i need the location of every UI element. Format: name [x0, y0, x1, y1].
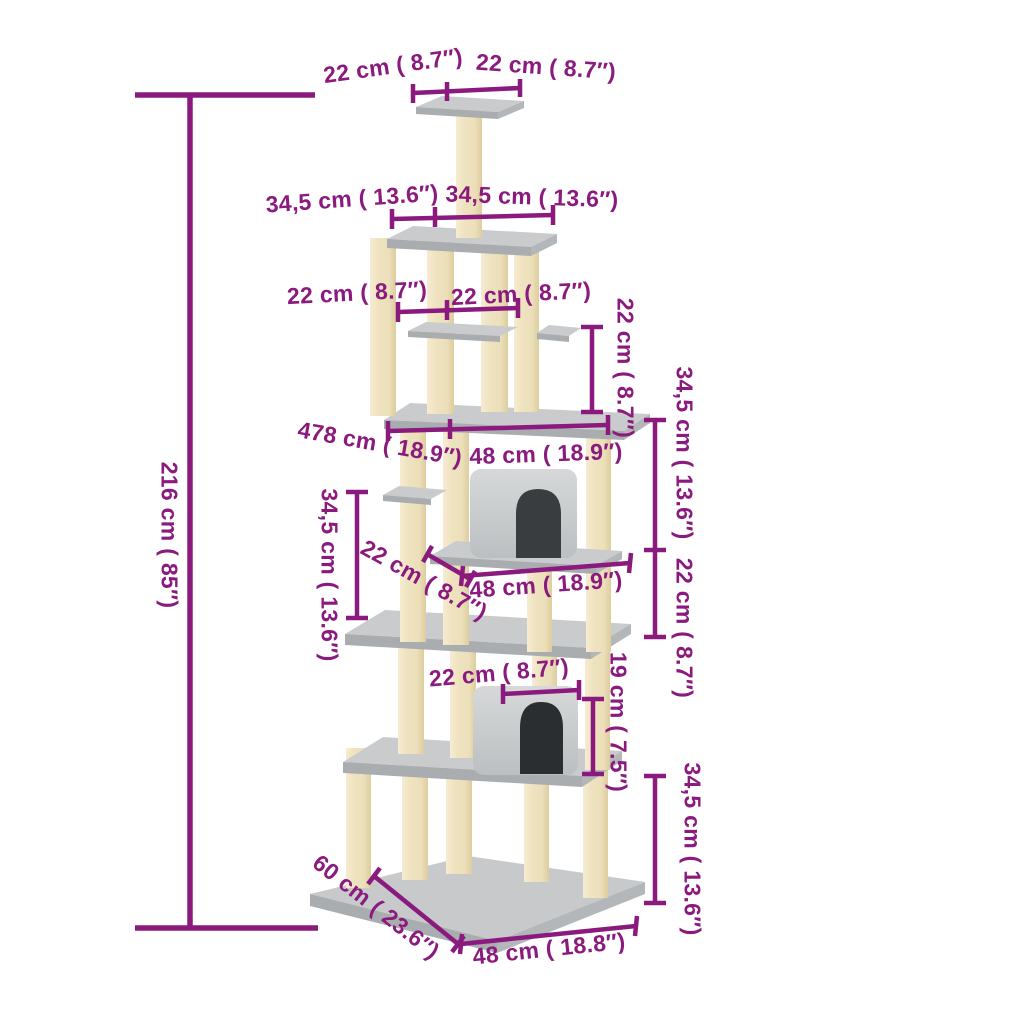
dim-label-shelf-drop-height: 22 cm ( 8.7″)	[612, 298, 639, 438]
cat-tree-illustration	[0, 0, 1024, 1024]
dim-base-gap	[644, 776, 666, 903]
dim-label-right-gap-lower-height: 22 cm ( 8.7″)	[671, 558, 698, 698]
dimension-diagram: 216 cm ( 85″) 22 cm ( 8.7″) 22 cm ( 8.7″…	[0, 0, 1024, 1024]
dim-label-right-gap-upper-height: 34,5 cm ( 13.6″)	[671, 366, 698, 539]
platform-top	[416, 96, 524, 119]
scratching-post	[481, 238, 508, 412]
dim-label-total-height: 216 cm ( 85″)	[156, 462, 183, 609]
dim-label-lower-house-height: 19 cm ( 7.5″)	[605, 652, 632, 792]
scratching-post	[514, 238, 539, 412]
dim-label-base-gap-height: 34,5 cm ( 13.6″)	[679, 762, 706, 935]
dim-shelf-drop	[581, 327, 603, 412]
house-opening-upper	[516, 489, 561, 558]
dim-label-main-platform-width: 48 cm ( 18.9″)	[469, 438, 623, 470]
house-opening-lower	[520, 702, 563, 774]
cat-house-lower	[473, 686, 578, 775]
shelf-upper-right	[537, 325, 581, 342]
scratching-post	[398, 636, 424, 754]
dim-right-gaps	[644, 420, 666, 637]
scratching-post	[370, 238, 396, 416]
scratching-post	[450, 640, 476, 758]
shelf-side	[383, 486, 447, 505]
dim-label-left-gap-height: 34,5 cm ( 13.6″)	[316, 488, 343, 661]
cat-house-upper	[470, 469, 577, 558]
